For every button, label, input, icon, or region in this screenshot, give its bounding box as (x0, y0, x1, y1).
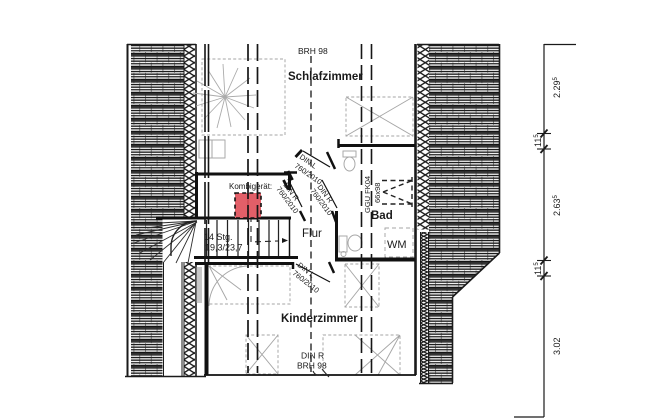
svg-text:Kinderzimmer: Kinderzimmer (281, 313, 358, 325)
svg-text:Flur: Flur (302, 228, 322, 240)
svg-text:66x98: 66x98 (373, 183, 382, 203)
svg-text:BRH 98: BRH 98 (298, 46, 328, 56)
svg-text:14 Stg.: 14 Stg. (204, 232, 233, 242)
svg-text:Schlafzimmer: Schlafzimmer (288, 71, 363, 83)
svg-text:WM: WM (387, 239, 407, 251)
svg-text:DIN R: DIN R (301, 351, 324, 361)
svg-text:3.02: 3.02 (552, 337, 562, 355)
svg-text:GGU FK04: GGU FK04 (363, 176, 372, 213)
svg-text:19,3/23,7: 19,3/23,7 (205, 243, 243, 253)
svg-text:Bad: Bad (371, 210, 393, 222)
svg-text:Kombigerät:: Kombigerät: (229, 182, 272, 191)
